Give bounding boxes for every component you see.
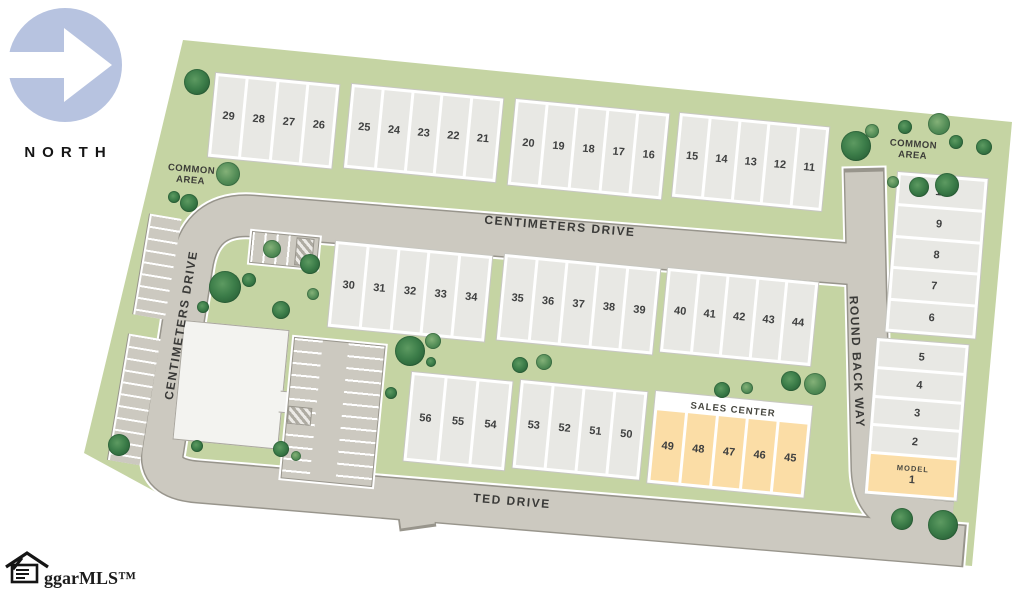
lot-18: 18 [571, 108, 606, 190]
tree-icon [180, 194, 198, 212]
lot-14: 14 [704, 119, 738, 199]
tree-icon [108, 434, 130, 456]
lot-1: MODEL1 [868, 454, 957, 497]
clubhouse-building [172, 320, 289, 450]
lot-54: 54 [472, 382, 509, 467]
lot-31: 31 [362, 247, 397, 329]
lot-3: 3 [873, 398, 961, 430]
north-label: NORTH [8, 144, 122, 161]
tree-icon [909, 177, 929, 197]
tree-icon [425, 333, 441, 349]
parking-lot [282, 338, 385, 486]
lot-34: 34 [454, 256, 489, 338]
lot-21: 21 [466, 99, 500, 179]
tree-icon [935, 173, 959, 197]
tree-icon [300, 254, 320, 274]
lot-39: 39 [622, 269, 657, 351]
lot-46: 46 [742, 419, 776, 491]
tree-icon [272, 301, 290, 319]
lot-55: 55 [439, 378, 476, 463]
tree-icon [714, 382, 730, 398]
lot-8: 8 [894, 238, 980, 273]
tree-icon [804, 373, 826, 395]
lot-23: 23 [407, 93, 441, 173]
lot-42: 42 [722, 277, 756, 357]
lot-35: 35 [500, 257, 535, 339]
lot-30: 30 [331, 244, 366, 326]
crosswalk-hatch [287, 406, 313, 426]
tree-icon [426, 357, 436, 367]
lot-block: 4041424344 [660, 268, 818, 366]
lot-block: 29282726 [208, 73, 339, 168]
lot-16: 16 [631, 114, 666, 196]
tree-icon [976, 139, 992, 155]
lot-13: 13 [734, 122, 768, 202]
lot-17: 17 [601, 111, 636, 193]
lot-28: 28 [241, 79, 276, 159]
lot-block: 2524232221 [344, 84, 503, 182]
lot-47: 47 [712, 416, 746, 488]
lot-49: 49 [650, 410, 684, 482]
lot-12: 12 [763, 125, 797, 205]
north-arrow-tail [0, 52, 72, 78]
tree-icon [536, 354, 552, 370]
site-plan: CENTIMETERS DRIVE CENTIMETERS DRIVE ROUN… [0, 0, 1023, 588]
lot-block: 53525150 [513, 380, 648, 480]
tree-icon [395, 336, 425, 366]
lot-41: 41 [693, 274, 727, 354]
lot-25: 25 [347, 87, 381, 167]
tree-icon [781, 371, 801, 391]
lot-48: 48 [681, 413, 715, 485]
tree-icon [928, 510, 958, 540]
lot-20: 20 [511, 102, 546, 184]
lot-36: 36 [530, 260, 565, 342]
tree-icon [197, 301, 209, 313]
tree-icon [307, 288, 319, 300]
lot-32: 32 [392, 250, 427, 332]
tree-icon [291, 451, 301, 461]
lot-22: 22 [436, 96, 470, 176]
lot-40: 40 [663, 271, 697, 351]
lot-51: 51 [578, 389, 614, 473]
lot-5: 5 [878, 341, 966, 373]
lot-4: 4 [876, 369, 964, 401]
lot-45: 45 [773, 422, 807, 494]
lot-50: 50 [608, 392, 644, 476]
tree-icon [949, 135, 963, 149]
model-lot-number: 1 [908, 474, 915, 487]
lot-52: 52 [547, 386, 583, 470]
lot-9: 9 [896, 207, 982, 242]
lot-11: 11 [792, 128, 826, 208]
tree-icon [385, 387, 397, 399]
tree-icon [242, 273, 256, 287]
tree-icon [263, 240, 281, 258]
lot-block: 109876 [885, 172, 987, 339]
north-arrow-icon [8, 8, 122, 122]
tree-icon [512, 357, 528, 373]
lot-33: 33 [423, 253, 458, 335]
lot-block: 5432MODEL1 [865, 338, 969, 501]
common-area-label-right: COMMON AREA [881, 137, 944, 164]
tree-icon [887, 176, 899, 188]
tree-icon [184, 69, 210, 95]
lot-block: 3031323334 [328, 241, 493, 342]
lot-56: 56 [407, 375, 444, 460]
lot-29: 29 [211, 76, 246, 156]
lot-38: 38 [591, 266, 626, 348]
lot-44: 44 [781, 283, 815, 363]
lot-19: 19 [541, 105, 576, 187]
lot-43: 43 [752, 280, 786, 360]
tree-icon [891, 508, 913, 530]
tree-icon [209, 271, 241, 303]
tree-icon [191, 440, 203, 452]
lot-block: 2019181716 [508, 99, 670, 199]
tree-icon [865, 124, 879, 138]
tree-icon [741, 382, 753, 394]
north-arrow-head [64, 28, 112, 102]
lot-block: SALES CENTER4948474645 [647, 391, 812, 498]
mls-logo: ggarMLS™ [2, 550, 136, 591]
lot-37: 37 [561, 263, 596, 345]
lot-6: 6 [889, 300, 975, 335]
tree-icon [168, 191, 180, 203]
north-indicator: NORTH [8, 8, 122, 161]
tree-icon [928, 113, 950, 135]
lot-2: 2 [871, 426, 959, 458]
lot-53: 53 [516, 383, 552, 467]
lot-24: 24 [377, 90, 411, 170]
lot-15: 15 [675, 116, 709, 196]
logo-text: ggarMLS™ [44, 568, 136, 589]
lot-7: 7 [891, 269, 977, 304]
tree-icon [216, 162, 240, 186]
lot-block: 3536373839 [497, 254, 661, 355]
lot-block: 1514131211 [672, 113, 829, 211]
lot-block: 565554 [403, 372, 512, 470]
lot-27: 27 [271, 82, 306, 162]
tree-icon [898, 120, 912, 134]
lot-26: 26 [302, 85, 337, 165]
tree-icon [273, 441, 289, 457]
